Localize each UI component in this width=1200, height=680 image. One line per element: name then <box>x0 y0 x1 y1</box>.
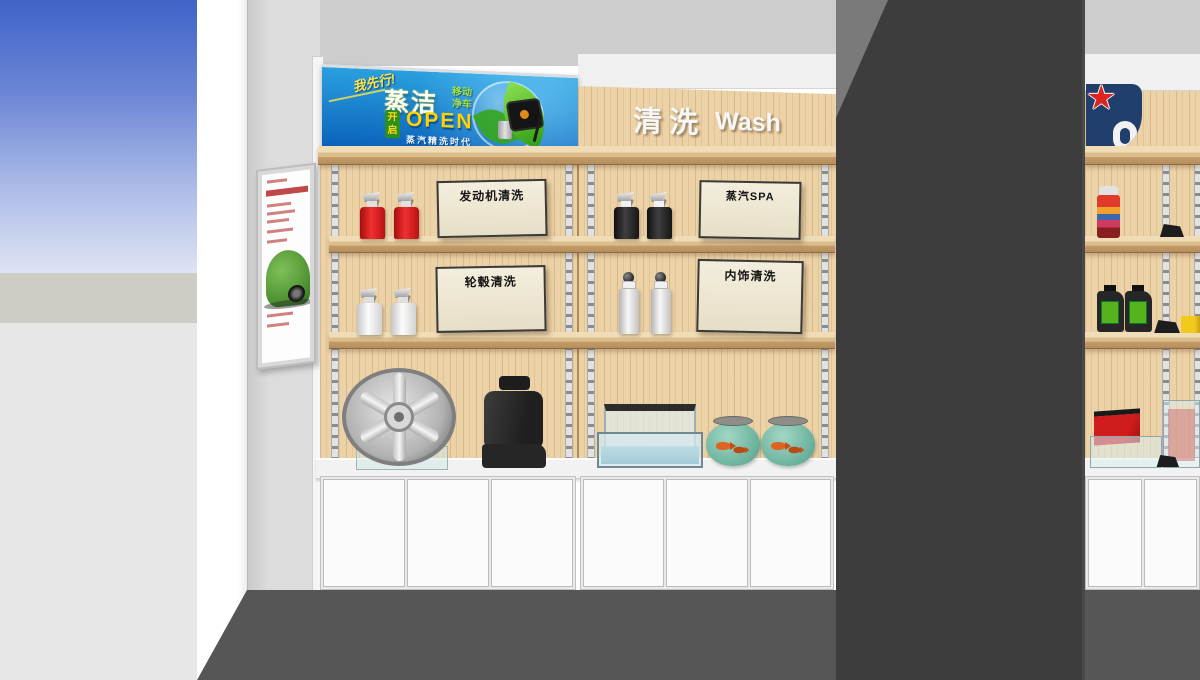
aerosol-canister <box>651 272 671 334</box>
bowl-body <box>761 422 815 466</box>
poster-text-line <box>267 218 289 224</box>
slotted-standard <box>331 150 339 460</box>
alloy-wheel-rim <box>342 368 460 470</box>
store-interior-render: 我先行! 蒸洁 移动 净车 开启 OPEN 蒸汽精洗时代 清洗 Wash <box>0 0 1200 680</box>
bowl-body <box>706 422 760 466</box>
poster-text-line <box>267 178 287 183</box>
base-cabinet-far-right <box>1085 476 1200 590</box>
shelf-board <box>1085 332 1200 349</box>
section-header-cn: 清洗 <box>633 98 705 142</box>
can-body <box>1097 195 1120 238</box>
goldfish <box>789 447 801 453</box>
poster-content <box>262 169 310 363</box>
goldfish <box>716 442 731 450</box>
red-spray-bottle <box>360 192 386 239</box>
banner-subtitle: 移动 净车 <box>452 87 472 112</box>
cabinet-door <box>750 479 831 587</box>
cabinet-door <box>666 479 747 587</box>
jug-label <box>1129 301 1147 324</box>
black-spray-bottle <box>614 192 640 239</box>
base-cabinet-left <box>320 476 576 590</box>
car-seat-model <box>482 376 546 468</box>
cabinet-door <box>1144 479 1198 587</box>
tank-front <box>597 432 703 468</box>
wheel-rim-face <box>342 368 456 466</box>
poster-text-line <box>267 322 289 328</box>
bottle-body <box>357 303 382 335</box>
open-text: OPEN <box>406 108 474 135</box>
glass-aquarium-tank <box>597 404 705 468</box>
slotted-standard <box>587 150 595 460</box>
dark-partition-column <box>836 0 1085 680</box>
can-cap <box>1099 186 1118 195</box>
tank-water <box>601 446 699 464</box>
canister-body <box>619 289 639 334</box>
bottle-body <box>614 207 639 239</box>
canister-cap <box>622 281 636 289</box>
poster-title-line <box>266 186 308 197</box>
black-jug-green-label <box>1097 285 1124 332</box>
window-sky <box>0 0 197 273</box>
cabinet-door <box>407 479 489 587</box>
glass-display-case <box>1090 436 1162 468</box>
sign-spa-label: 蒸汽SPA <box>701 187 799 205</box>
poster-text-line <box>267 227 293 233</box>
poster-text-line <box>267 238 287 243</box>
poster-text-line <box>267 202 291 208</box>
yellow-box <box>1181 316 1200 333</box>
cabinet-door <box>323 479 405 587</box>
white-spray-bottle <box>357 288 383 335</box>
unit-middle-seam <box>577 148 579 460</box>
sign-engine-cleaning: 发动机清洗 <box>436 179 547 238</box>
red-spray-bottle <box>394 192 420 239</box>
bottle-body <box>360 207 385 239</box>
sign-engine-label: 发动机清洗 <box>439 186 545 205</box>
cabinet-door <box>583 479 664 587</box>
sign-steam-spa: 蒸汽SPA <box>699 180 802 240</box>
price-list-lightbox <box>256 163 316 370</box>
black-spray-bottle <box>647 192 673 239</box>
bottle-body <box>647 207 672 239</box>
shelf-board-top <box>1085 146 1200 165</box>
goldfish <box>734 447 746 453</box>
black-jug-green-label <box>1125 285 1152 332</box>
poster-text-line <box>267 209 295 215</box>
seat-backrest <box>484 391 543 447</box>
wheel-hub <box>384 402 414 432</box>
canister-body <box>651 289 671 334</box>
seat-headrest <box>499 376 530 390</box>
brand-logo-panel: ★ <box>1086 84 1142 154</box>
spray-paint-can <box>1097 186 1120 238</box>
shelf-board <box>1085 236 1200 253</box>
cabinet-door <box>491 479 573 587</box>
white-pillar <box>197 0 248 680</box>
poster-text-line <box>267 311 293 317</box>
jug-label <box>1101 301 1119 324</box>
seat-base <box>482 444 546 468</box>
bottle-body <box>394 207 419 239</box>
top-fascia <box>578 54 836 89</box>
open-badge: 开启 <box>385 110 400 139</box>
slotted-standard <box>821 150 829 460</box>
slotted-standard <box>565 150 573 460</box>
banner-subtitle-line1: 移动 <box>452 87 472 100</box>
white-spray-bottle <box>391 288 417 335</box>
sign-wheel-cleaning: 轮毂清洗 <box>435 265 546 333</box>
section-header-en: Wash <box>715 107 781 138</box>
goldfish-bowl <box>761 416 815 466</box>
window-sill <box>0 273 197 323</box>
sign-interior-cleaning: 内饰清洗 <box>696 259 804 334</box>
goldfish-bowl <box>706 416 760 466</box>
bottle-body <box>391 303 416 335</box>
bowl-rim <box>768 416 808 426</box>
aerosol-canister <box>619 272 639 334</box>
shelf-board-top <box>318 146 838 165</box>
star-icon: ★ <box>1086 84 1116 118</box>
bowl-rim <box>713 416 753 426</box>
canister-cap <box>654 281 668 289</box>
left-lower-wall <box>0 323 197 680</box>
goldfish <box>771 442 786 450</box>
base-cabinet-right <box>580 476 834 590</box>
sign-wheel-label: 轮毂清洗 <box>438 272 544 291</box>
cabinet-door <box>1088 479 1142 587</box>
sign-interior-label: 内饰清洗 <box>699 266 801 285</box>
